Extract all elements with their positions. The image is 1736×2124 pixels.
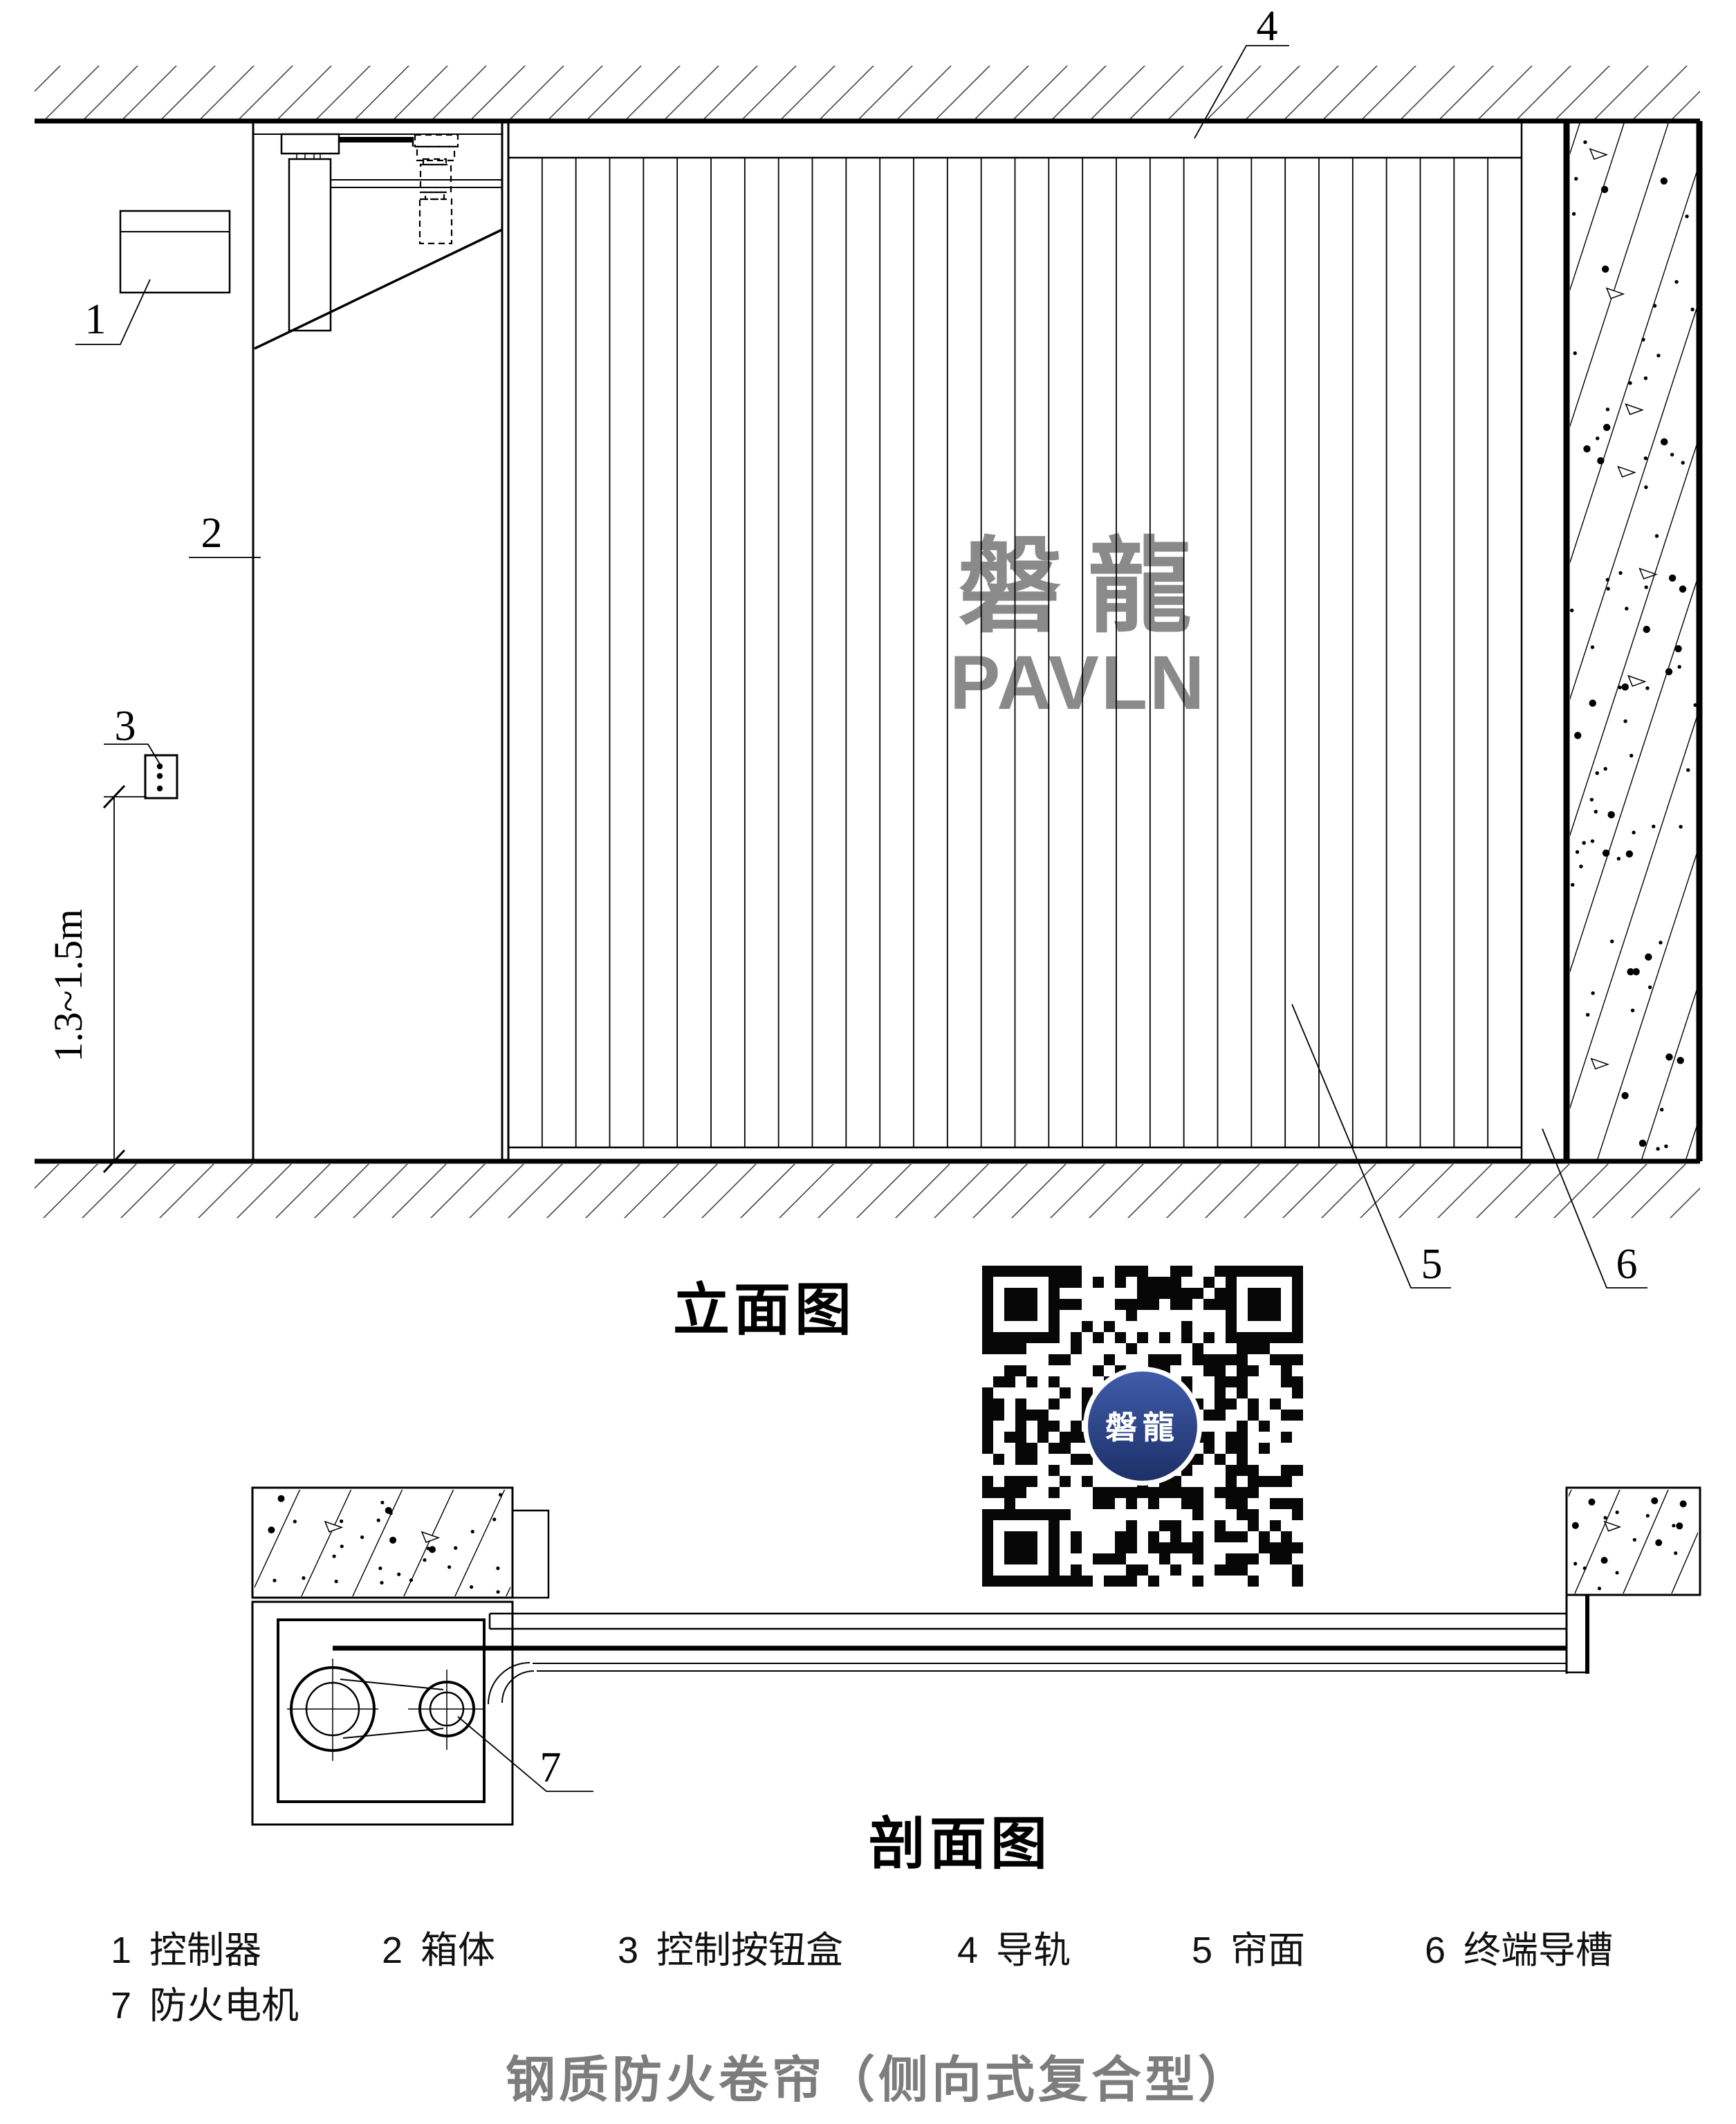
- aggregate-dot: [497, 1590, 500, 1594]
- aggregate-dot: [1617, 857, 1620, 860]
- aggregate-dot: [1664, 1145, 1668, 1148]
- aggregate-dot: [1573, 1562, 1577, 1565]
- qr-module: [1026, 1443, 1037, 1454]
- aggregate-dot: [1571, 883, 1574, 887]
- qr-module: [1115, 1576, 1126, 1587]
- aggregate-dot: [423, 1558, 426, 1562]
- qr-module: [1026, 1476, 1037, 1487]
- qr-module: [1137, 1277, 1148, 1288]
- qr-module: [1015, 1365, 1026, 1376]
- qr-module: [1126, 1576, 1137, 1587]
- qr-module: [1104, 1553, 1115, 1564]
- aggregate-dot: [1646, 1514, 1650, 1517]
- qr-module: [1270, 1498, 1281, 1509]
- aggregate-dot: [1674, 1551, 1677, 1555]
- qr-module: [1126, 1487, 1137, 1498]
- qr-module: [1281, 1542, 1292, 1553]
- aggregate-dot: [1586, 1013, 1589, 1016]
- qr-module: [1071, 1454, 1082, 1465]
- aggregate-dot: [1674, 645, 1681, 652]
- aggregate-dot: [1674, 280, 1678, 284]
- qr-module: [1093, 1498, 1104, 1509]
- qr-module: [1248, 1576, 1259, 1587]
- qr-module: [1071, 1421, 1082, 1432]
- qr-module: [1281, 1410, 1292, 1421]
- aggregate-dot: [377, 1519, 380, 1522]
- aggregate-dot: [397, 1573, 400, 1576]
- aggregate-dot: [389, 1537, 396, 1544]
- qr-module: [1015, 1421, 1026, 1432]
- qr-module: [1115, 1277, 1126, 1288]
- aggregate-dot: [389, 1511, 393, 1515]
- qr-module: [993, 1398, 1004, 1410]
- qr-module: [1015, 1476, 1026, 1487]
- aggregate-dot: [360, 1535, 364, 1539]
- qr-module: [1148, 1288, 1159, 1299]
- qr-module: [1159, 1487, 1170, 1498]
- aggregate-dot: [1670, 453, 1674, 456]
- aggregate-dot: [1588, 1499, 1595, 1506]
- aggregate-dot: [1665, 1053, 1672, 1060]
- aggregate-dot: [1660, 1108, 1663, 1111]
- qr-module: [982, 1421, 993, 1432]
- qr-module: [1292, 1410, 1303, 1421]
- aggregate-dot: [1632, 831, 1635, 834]
- qr-module: [1082, 1576, 1093, 1587]
- qr-module: [1292, 1387, 1303, 1398]
- qr-module: [982, 1476, 993, 1487]
- section-title: 剖面图: [869, 1813, 1051, 1876]
- qr-module: [1226, 1398, 1237, 1410]
- aggregate-dot: [1574, 177, 1578, 181]
- qr-module: [1181, 1487, 1192, 1498]
- qr-module: [1237, 1487, 1248, 1498]
- qr-module: [1115, 1531, 1126, 1542]
- aggregate-dot: [1621, 1092, 1628, 1099]
- qr-module: [1015, 1343, 1026, 1354]
- qr-module: [1015, 1410, 1026, 1421]
- aggregate-dot: [499, 1493, 502, 1497]
- qr-module: [1281, 1531, 1292, 1542]
- qr-module: [1126, 1299, 1137, 1310]
- qr-module: [1192, 1354, 1203, 1365]
- qr-module: [1215, 1288, 1226, 1299]
- qr-module: [1203, 1432, 1215, 1443]
- qr-module: [1126, 1520, 1137, 1531]
- qr-module: [1203, 1332, 1215, 1343]
- qr-module: [1181, 1321, 1192, 1332]
- qr-module: [1248, 1343, 1259, 1354]
- qr-module: [1148, 1576, 1159, 1587]
- aggregate-dot: [492, 1517, 496, 1521]
- aggregate-dot: [1579, 865, 1582, 868]
- qr-module: [1181, 1299, 1192, 1310]
- aggregate-dot: [1681, 461, 1685, 464]
- aggregate-dot: [340, 1544, 344, 1548]
- qr-module: [1071, 1343, 1082, 1354]
- qr-module: [1170, 1520, 1181, 1531]
- aggregate-dot: [1596, 771, 1599, 775]
- qr-module: [1126, 1542, 1137, 1553]
- qr-module: [1104, 1498, 1115, 1509]
- qr-module: [1281, 1553, 1292, 1564]
- aggregate-dot: [1616, 1511, 1619, 1514]
- qr-module: [1192, 1531, 1203, 1542]
- qr-module: [1170, 1354, 1181, 1365]
- qr-module: [1093, 1487, 1104, 1498]
- qr-module: [1004, 1288, 1037, 1321]
- aggregate-dot: [1661, 177, 1668, 184]
- qr-module: [1159, 1520, 1170, 1531]
- aggregate-dot: [1651, 1497, 1658, 1504]
- qr-module: [1237, 1376, 1248, 1387]
- aggregate-dot: [1597, 457, 1604, 464]
- qr-module: [1192, 1498, 1203, 1509]
- aggregate-dot: [1610, 939, 1614, 943]
- qr-module: [1071, 1576, 1082, 1587]
- qr-module: [1060, 1299, 1071, 1310]
- aggregate-dot: [1656, 353, 1660, 357]
- qr-module: [1192, 1288, 1203, 1299]
- aggregate-dot: [1645, 686, 1649, 690]
- qr-module: [1248, 1410, 1259, 1421]
- qr-module: [1237, 1365, 1248, 1376]
- qr-module: [982, 1487, 993, 1498]
- qr-module: [1060, 1576, 1071, 1587]
- aggregate-dot: [1572, 1522, 1579, 1529]
- qr-module: [1248, 1509, 1259, 1520]
- qr-module: [1226, 1487, 1237, 1498]
- elevation-title: 立面图: [673, 1279, 856, 1342]
- qr-module: [1281, 1432, 1292, 1443]
- qr-module: [1060, 1476, 1071, 1487]
- qr-module: [993, 1487, 1004, 1498]
- qr-module: [1281, 1476, 1292, 1487]
- qr-module: [1270, 1354, 1281, 1365]
- qr-module: [1192, 1553, 1203, 1564]
- qr-module: [1292, 1509, 1303, 1520]
- qr-module: [1215, 1354, 1226, 1365]
- aggregate-dot: [273, 1579, 276, 1582]
- qr-module: [993, 1454, 1004, 1465]
- aggregate-dot: [1622, 683, 1629, 690]
- callout-3: 3: [115, 703, 136, 750]
- qr-module: [1115, 1299, 1126, 1310]
- qr-module: [1137, 1288, 1148, 1299]
- qr-module: [1270, 1553, 1281, 1564]
- qr-module: [1259, 1343, 1270, 1354]
- aggregate-dot: [1641, 338, 1645, 341]
- qr-module: [1226, 1376, 1237, 1387]
- qr-module: [1237, 1465, 1248, 1476]
- qr-module: [1148, 1487, 1159, 1498]
- qr-module: [1226, 1465, 1237, 1476]
- qr-module: [1237, 1553, 1248, 1564]
- qr-module: [1226, 1432, 1237, 1443]
- aggregate-dot: [1631, 1008, 1634, 1012]
- qr-module: [1004, 1487, 1015, 1498]
- qr-module: [1259, 1531, 1270, 1542]
- qr-module: [1004, 1531, 1037, 1564]
- qr-module: [1226, 1498, 1237, 1509]
- qr-module: [1270, 1476, 1281, 1487]
- aggregate-dot: [1661, 438, 1668, 445]
- aggregate-dot: [427, 1546, 430, 1550]
- qr-module: [1060, 1354, 1071, 1365]
- aggregate-dot: [1589, 700, 1596, 707]
- qr-module: [1104, 1321, 1115, 1332]
- qr-module: [1237, 1531, 1248, 1542]
- qr-module: [1215, 1410, 1226, 1421]
- aggregate-dot: [1606, 578, 1609, 581]
- qr-module: [1126, 1564, 1137, 1576]
- aggregate-dot: [1606, 407, 1609, 411]
- qr-module: [1215, 1564, 1226, 1576]
- aggregate-dot: [447, 1565, 451, 1569]
- aggregate-dot: [1656, 1147, 1659, 1150]
- qr-module: [1060, 1509, 1071, 1520]
- qr-module: [1137, 1332, 1148, 1343]
- qr-module: [1215, 1487, 1226, 1498]
- qr-module: [1292, 1564, 1303, 1576]
- qr-module: [1115, 1266, 1126, 1277]
- aggregate-dot: [1623, 719, 1627, 723]
- aggregate-dot: [1644, 585, 1647, 589]
- aggregate-dot: [1602, 266, 1609, 273]
- qr-module: [1060, 1277, 1071, 1288]
- qr-module: [1170, 1266, 1181, 1277]
- callout-4: 4: [1257, 3, 1278, 50]
- qr-module: [1148, 1299, 1159, 1310]
- qr-module: [1015, 1454, 1026, 1465]
- aggregate-dot: [1583, 445, 1590, 452]
- aggregate-dot: [1603, 767, 1607, 770]
- qr-module: [1281, 1365, 1292, 1376]
- qr-module: [1159, 1553, 1170, 1564]
- qr-logo-text: 磐龍: [1105, 1410, 1180, 1446]
- qr-module: [1159, 1542, 1170, 1553]
- aggregate-dot: [1669, 575, 1676, 582]
- qr-module: [1292, 1576, 1303, 1587]
- aggregate-dot: [1679, 825, 1682, 829]
- qr-module: [1049, 1487, 1060, 1498]
- aggregate-dot: [1591, 839, 1594, 842]
- aggregate-dot: [1591, 645, 1594, 649]
- aggregate-dot: [1685, 214, 1688, 218]
- aggregate-dot: [380, 1501, 384, 1504]
- qr-module: [1292, 1542, 1303, 1553]
- qr-module: [1248, 1288, 1281, 1321]
- qr-module: [1215, 1299, 1226, 1310]
- aggregate-dot: [1618, 685, 1621, 689]
- qr-module: [1148, 1531, 1159, 1542]
- qr-module: [982, 1432, 993, 1443]
- qr-module: [1181, 1542, 1192, 1553]
- qr-module: [1270, 1520, 1281, 1531]
- qr-module: [1104, 1487, 1115, 1498]
- qr-module: [1170, 1564, 1181, 1576]
- qr-module: [1137, 1266, 1148, 1277]
- qr-module: [1137, 1487, 1148, 1498]
- aggregate-dot: [1608, 811, 1615, 818]
- callout-6: 6: [1616, 1241, 1638, 1288]
- aggregate-dot: [340, 1520, 343, 1523]
- aggregate-dot: [1645, 953, 1652, 960]
- qr-module: [1170, 1542, 1181, 1553]
- aggregate-dot: [1627, 968, 1634, 975]
- qr-module: [1148, 1354, 1159, 1365]
- aggregate-dot: [1591, 991, 1594, 995]
- qr-module: [1215, 1387, 1226, 1398]
- aggregate-dot: [1601, 186, 1608, 193]
- qr-module: [1015, 1398, 1026, 1410]
- aggregate-dot: [1639, 1140, 1646, 1147]
- qr-module: [982, 1443, 993, 1454]
- qr-module: [1281, 1498, 1292, 1509]
- qr-module: [1226, 1553, 1237, 1564]
- qr-module: [1004, 1432, 1015, 1443]
- qr-module: [1281, 1465, 1292, 1476]
- aggregate-dot: [268, 1526, 275, 1533]
- aggregate-dot: [1625, 607, 1628, 610]
- qr-module: [982, 1343, 993, 1354]
- qr-module: [1060, 1387, 1071, 1398]
- aggregate-dot: [1582, 841, 1585, 844]
- aggregate-dot: [496, 1567, 499, 1570]
- qr-module: [1203, 1299, 1215, 1310]
- qr-module: [1237, 1343, 1248, 1354]
- qr-module: [1237, 1454, 1248, 1465]
- aggregate-dot: [278, 1495, 285, 1502]
- qr-module: [1159, 1288, 1170, 1299]
- qr-module: [982, 1387, 993, 1398]
- watermark-cjk: 磐龍: [958, 528, 1218, 645]
- qr-module: [1049, 1443, 1060, 1454]
- aggregate-dot: [1643, 626, 1650, 633]
- watermark-latin: PAVLN: [950, 640, 1206, 726]
- qr-module: [1093, 1553, 1104, 1564]
- qr-module: [1170, 1288, 1181, 1299]
- qr-module: [1037, 1432, 1049, 1443]
- qr-module: [1237, 1432, 1248, 1443]
- aggregate-dot: [1598, 1587, 1601, 1590]
- qr-module: [1237, 1387, 1248, 1398]
- aggregate-dot: [1603, 1516, 1607, 1520]
- qr-module: [1159, 1332, 1170, 1343]
- page-background: [0, 0, 1736, 2124]
- qr-module: [1004, 1476, 1015, 1487]
- qr-module: [1192, 1487, 1203, 1498]
- qr-module: [1215, 1531, 1226, 1542]
- qr-module: [1215, 1520, 1226, 1531]
- legend-item-2: 2箱体: [382, 1930, 495, 1971]
- qr-module: [1126, 1343, 1137, 1354]
- aggregate-dot: [1644, 456, 1647, 460]
- qr-module: [1159, 1277, 1170, 1288]
- qr-module: [1015, 1487, 1026, 1498]
- qr-module: [1060, 1266, 1071, 1277]
- aggregate-dot: [409, 1578, 413, 1582]
- qr-module: [1170, 1277, 1181, 1288]
- qr-module: [1292, 1498, 1303, 1509]
- qr-module: [1237, 1421, 1248, 1432]
- aggregate-dot: [1618, 571, 1622, 575]
- aggregate-dot: [1628, 381, 1632, 385]
- aggregate-dot: [1574, 732, 1581, 739]
- qr-module: [1237, 1498, 1248, 1509]
- callout-1: 1: [85, 296, 107, 343]
- qr-module: [1115, 1332, 1126, 1343]
- qr-module: [1026, 1376, 1037, 1387]
- qr-module: [1071, 1332, 1082, 1343]
- aggregate-dot: [1596, 436, 1599, 440]
- aggregate-dot: [1676, 1522, 1683, 1529]
- aggregate-dot: [1583, 140, 1587, 144]
- qr-module: [1215, 1266, 1226, 1277]
- qr-module: [1015, 1432, 1026, 1443]
- qr-module: [1226, 1443, 1237, 1454]
- qr-module: [1071, 1299, 1082, 1310]
- qr-module: [1026, 1454, 1037, 1465]
- qr-module: [1215, 1376, 1226, 1387]
- qr-module: [1115, 1487, 1126, 1498]
- qr-module: [1082, 1476, 1093, 1487]
- aggregate-dot: [1652, 824, 1655, 828]
- aggregate-dot: [1601, 1557, 1608, 1564]
- aggregate-dot: [1659, 941, 1662, 944]
- aggregate-dot: [1603, 424, 1610, 431]
- aggregate-dot: [1633, 1538, 1636, 1542]
- aggregate-dot: [1629, 754, 1633, 757]
- qr-module: [1126, 1531, 1137, 1542]
- aggregate-dot: [1615, 1571, 1618, 1574]
- aggregate-dot: [454, 1546, 457, 1550]
- qr-module: [1170, 1531, 1181, 1542]
- qr-module: [1004, 1365, 1015, 1376]
- qr-module: [1203, 1443, 1215, 1454]
- qr-module: [1181, 1498, 1192, 1509]
- qr-module: [1071, 1432, 1082, 1443]
- qr-module: [1292, 1354, 1303, 1365]
- drawing-page: 磐龍 PAVLN: [0, 0, 1736, 2124]
- aggregate-dot: [1644, 376, 1647, 380]
- qr-module: [1281, 1354, 1292, 1365]
- qr-module: [1037, 1421, 1049, 1432]
- qr-module: [993, 1410, 1004, 1421]
- aggregate-dot: [380, 1581, 383, 1585]
- qr-module: [1126, 1310, 1137, 1321]
- qr-module: [1259, 1476, 1270, 1487]
- qr-module: [1192, 1542, 1203, 1553]
- qr-module: [1071, 1266, 1082, 1277]
- aggregate-dot: [1570, 609, 1573, 612]
- aggregate-dot: [378, 1567, 382, 1570]
- qr-module: [1170, 1299, 1181, 1310]
- qr-module: [1093, 1277, 1104, 1288]
- callout-5: 5: [1421, 1241, 1443, 1288]
- aggregate-dot: [333, 1555, 336, 1558]
- aggregate-dot: [1672, 1524, 1675, 1527]
- aggregate-dot: [1655, 1540, 1662, 1546]
- qr-module: [1226, 1531, 1237, 1542]
- aggregate-dot: [1590, 797, 1594, 801]
- qr-module: [1115, 1542, 1126, 1553]
- qr-module: [1248, 1465, 1259, 1476]
- qr-module: [1071, 1277, 1082, 1288]
- qr-module: [1060, 1432, 1071, 1443]
- qr-module: [1237, 1443, 1248, 1454]
- qr-module: [1203, 1410, 1215, 1421]
